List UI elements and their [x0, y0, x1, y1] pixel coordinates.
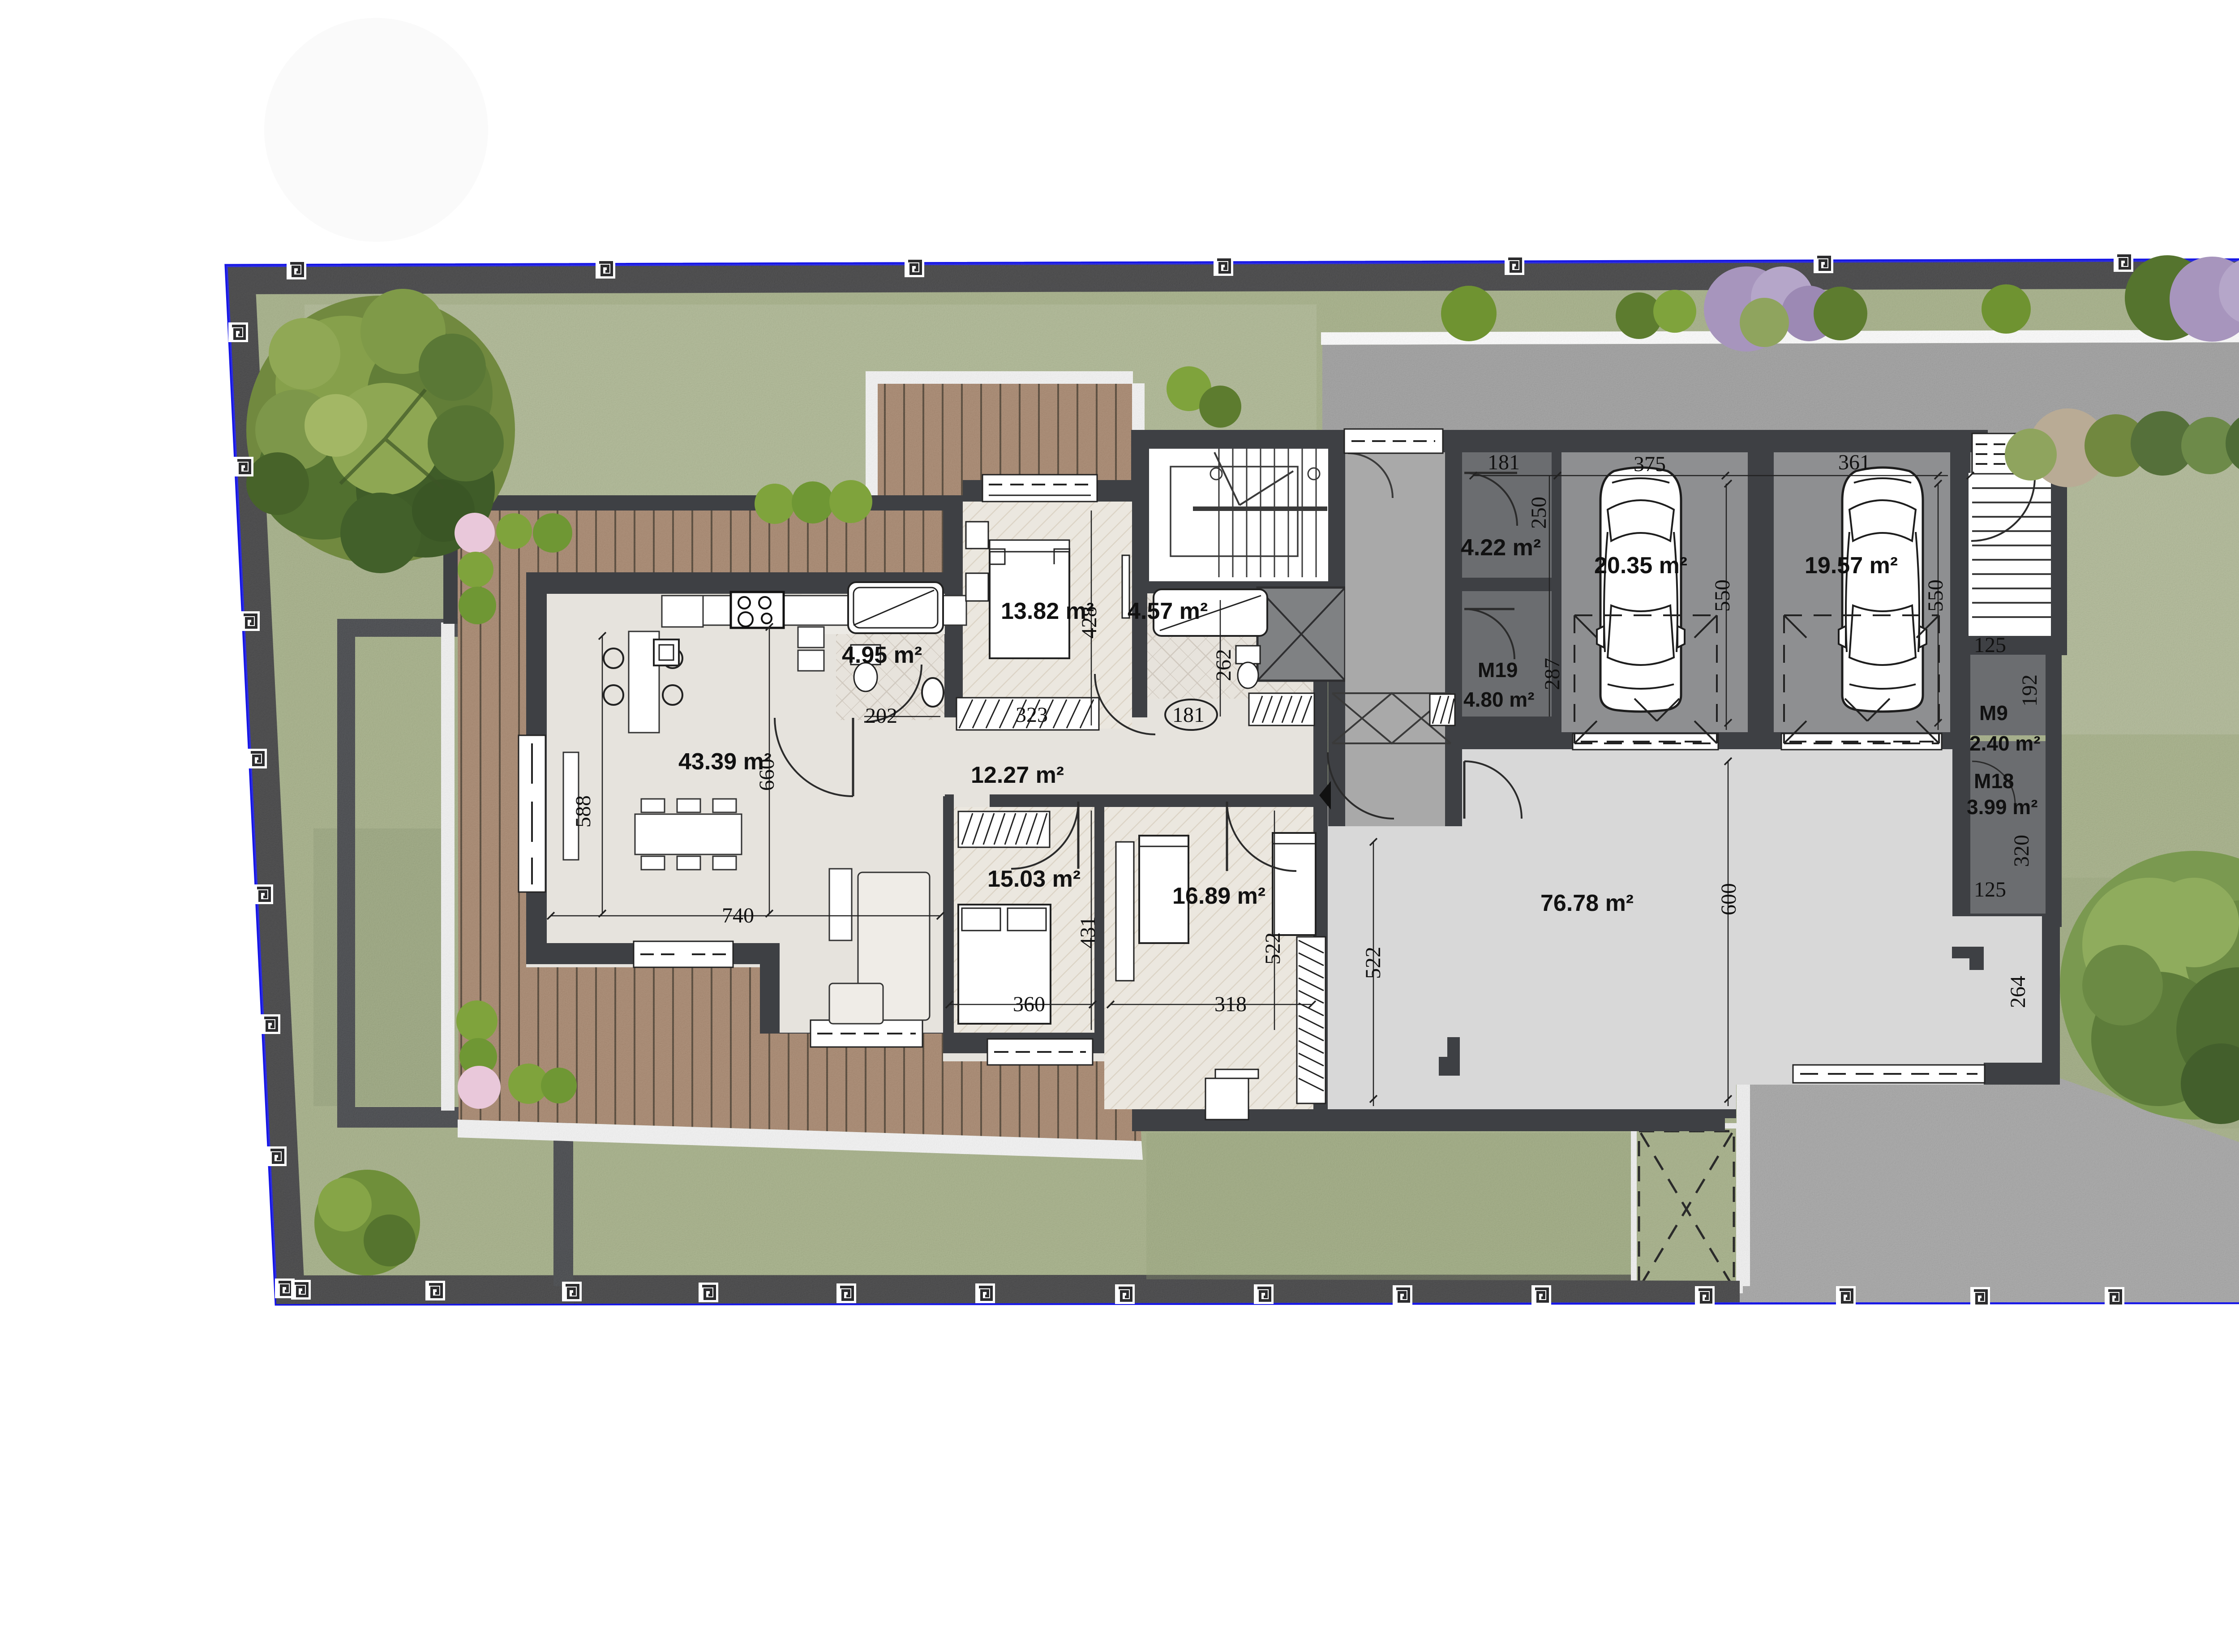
svg-text:318: 318 [1214, 992, 1247, 1016]
svg-text:4.22 m²: 4.22 m² [1461, 535, 1541, 561]
svg-text:76.78 m²: 76.78 m² [1540, 890, 1634, 916]
svg-text:M19: M19 [1478, 658, 1518, 682]
svg-text:320: 320 [2010, 835, 2033, 867]
svg-text:19.57 m²: 19.57 m² [1805, 553, 1898, 579]
svg-text:323: 323 [1016, 703, 1048, 727]
svg-text:361: 361 [1838, 451, 1870, 474]
svg-text:192: 192 [2018, 674, 2042, 707]
svg-text:262: 262 [1212, 649, 1235, 681]
svg-text:15.03 m²: 15.03 m² [987, 866, 1081, 892]
svg-text:4.80 m²: 4.80 m² [1463, 688, 1535, 711]
svg-text:181: 181 [1488, 451, 1520, 474]
svg-text:550: 550 [1924, 579, 1947, 612]
svg-text:125: 125 [1974, 633, 2006, 657]
svg-text:125: 125 [1974, 878, 2006, 901]
svg-text:428: 428 [1077, 606, 1101, 639]
svg-text:287: 287 [1540, 658, 1564, 690]
svg-text:550: 550 [1711, 579, 1734, 612]
svg-text:660: 660 [755, 759, 779, 791]
svg-text:588: 588 [571, 795, 595, 828]
svg-text:264: 264 [2006, 976, 2030, 1008]
svg-text:4.95 m²: 4.95 m² [842, 642, 922, 668]
svg-text:522: 522 [1261, 932, 1285, 965]
svg-text:740: 740 [722, 904, 754, 927]
svg-text:431: 431 [1076, 916, 1100, 948]
svg-text:375: 375 [1634, 452, 1666, 476]
svg-text:3.99 m²: 3.99 m² [1967, 795, 2038, 819]
svg-text:M9: M9 [1979, 701, 2008, 725]
svg-text:181: 181 [1172, 703, 1205, 727]
svg-text:12.27 m²: 12.27 m² [971, 762, 1064, 788]
svg-text:600: 600 [1717, 883, 1741, 915]
svg-text:M18: M18 [1974, 769, 2014, 793]
svg-text:202: 202 [865, 704, 897, 728]
svg-text:4.57 m²: 4.57 m² [1128, 598, 1208, 624]
svg-text:2.40 m²: 2.40 m² [1969, 732, 2041, 755]
svg-text:522: 522 [1361, 947, 1385, 979]
svg-text:360: 360 [1013, 992, 1045, 1016]
svg-text:16.89 m²: 16.89 m² [1172, 883, 1265, 909]
svg-text:250: 250 [1527, 497, 1551, 529]
svg-text:20.35 m²: 20.35 m² [1594, 553, 1687, 579]
